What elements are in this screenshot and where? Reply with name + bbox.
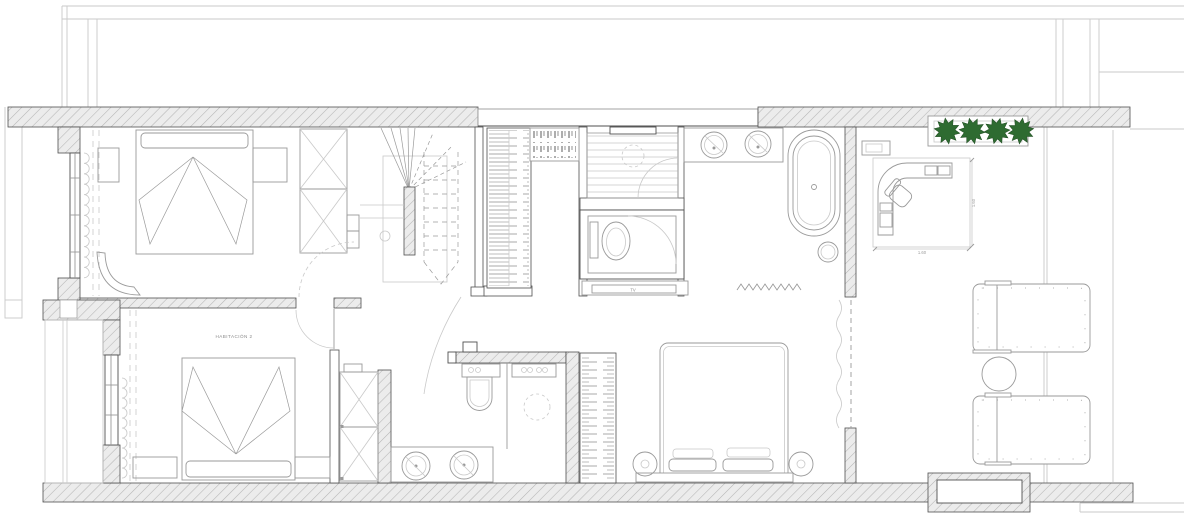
corner-desk: [878, 163, 952, 235]
stool: [818, 242, 838, 262]
wardrobe-1: [300, 129, 359, 253]
bed-2-pillow: [186, 461, 291, 477]
desk-area: 1.60 1.60: [862, 141, 976, 255]
hall-closet: [487, 128, 531, 288]
bedside-table: [633, 452, 657, 476]
bedroom1-curtain: [84, 130, 99, 296]
radiator-zigzag: [737, 284, 801, 290]
floor-plan-drawing: TV: [0, 0, 1184, 527]
bedside-table: [789, 452, 813, 476]
door-swing-bedroom1: [299, 242, 354, 297]
dimension-label: 1.60: [918, 250, 927, 255]
room-label: HABITACIÓN 2: [216, 333, 253, 339]
bed-1-pillow: [141, 133, 248, 148]
tall-cabinet: [340, 364, 378, 481]
headboard: [636, 473, 793, 482]
bedroom2: HABITACIÓN 2: [45, 309, 334, 483]
dimension-label: 1.60: [971, 198, 976, 207]
toilet: [467, 377, 492, 411]
bedroom1-window: [70, 153, 80, 278]
facade-window-band: [478, 109, 758, 126]
window-bay: [45, 320, 103, 483]
tv-cabinet: TV: [582, 281, 688, 295]
bathroom2: [340, 297, 556, 482]
bedroom2-window: [105, 355, 118, 445]
vanity-counter: [684, 128, 783, 162]
floor-plan-canvas: TV: [0, 0, 1184, 527]
lounger: [973, 393, 1090, 465]
door-swing-bathroom2: [424, 297, 461, 394]
shower-room: [587, 127, 678, 198]
wc-room: [580, 210, 684, 279]
folded-clothes-shelf: [530, 128, 579, 161]
master-suite: [580, 343, 813, 483]
vessel-sink: [701, 132, 727, 158]
exterior-walls: [8, 107, 1133, 512]
bedroom1: [97, 129, 359, 297]
curtain-wavy: [837, 300, 842, 428]
master-bathroom: [684, 128, 851, 428]
curtain: [122, 378, 127, 478]
planter: [928, 113, 1038, 149]
fixture-cistern: [512, 364, 556, 377]
pillow: [723, 459, 773, 471]
towel-rail: [610, 127, 656, 134]
door-swing-bedroom2: [296, 310, 334, 348]
pillow: [669, 459, 716, 471]
tv-label: TV: [630, 288, 636, 293]
toilet-cistern: [462, 364, 500, 377]
nightstand: [295, 457, 330, 478]
vessel-sink: [402, 452, 430, 480]
corner-chair: [97, 252, 140, 295]
shower-drain: [524, 394, 550, 420]
side-table: [982, 357, 1016, 391]
lounger: [973, 281, 1090, 353]
lounge-area: [973, 281, 1090, 465]
desk-chair: [884, 178, 914, 209]
stair-direction-arrow: [424, 262, 458, 284]
bathtub: [788, 130, 840, 236]
nightstand: [253, 148, 287, 182]
nightstand: [98, 148, 119, 182]
staircase: [360, 128, 466, 284]
vessel-sink: [745, 131, 771, 157]
vessel-sink: [450, 451, 478, 479]
stair-stringer-wall: [404, 187, 415, 255]
nightstand: [133, 457, 177, 478]
